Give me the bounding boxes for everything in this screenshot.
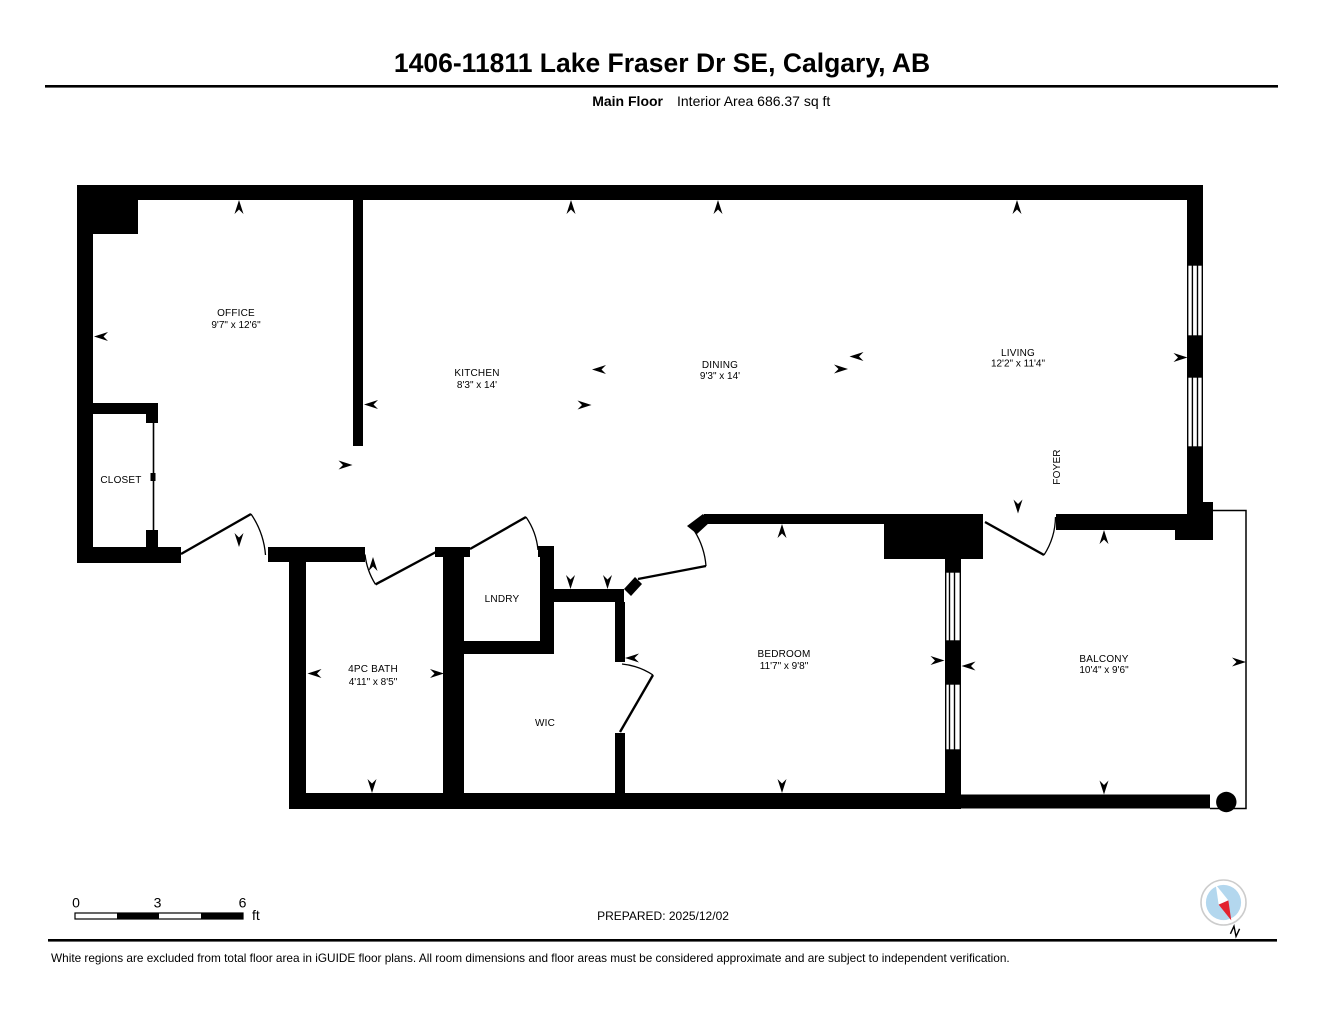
svg-text:WIC: WIC — [535, 718, 555, 729]
svg-text:8'3" x 14': 8'3" x 14' — [457, 380, 497, 391]
svg-text:LNDRY: LNDRY — [485, 594, 520, 605]
svg-text:White regions are excluded fro: White regions are excluded from total fl… — [51, 951, 1010, 965]
svg-text:4PC BATH: 4PC BATH — [348, 664, 398, 675]
svg-text:KITCHEN: KITCHEN — [454, 368, 499, 379]
svg-text:PREPARED: 2025/12/02: PREPARED: 2025/12/02 — [597, 909, 729, 923]
svg-text:1406-11811 Lake Fraser Dr SE,: 1406-11811 Lake Fraser Dr SE, Calgary, A… — [394, 48, 930, 78]
svg-text:9'7" x 12'6": 9'7" x 12'6" — [211, 320, 261, 331]
svg-text:FOYER: FOYER — [1052, 449, 1063, 484]
svg-text:10'4" x 9'6": 10'4" x 9'6" — [1079, 665, 1129, 676]
svg-text:0: 0 — [72, 895, 80, 911]
svg-text:DINING: DINING — [702, 360, 738, 371]
svg-text:3: 3 — [154, 895, 162, 911]
svg-text:BEDROOM: BEDROOM — [757, 649, 810, 660]
svg-text:Main Floor: Main Floor — [592, 93, 663, 109]
svg-text:OFFICE: OFFICE — [217, 308, 255, 319]
svg-text:4'11" x 8'5": 4'11" x 8'5" — [349, 677, 398, 688]
svg-text:6: 6 — [239, 895, 247, 911]
svg-text:9'3" x 14': 9'3" x 14' — [700, 371, 740, 382]
svg-text:CLOSET: CLOSET — [100, 475, 141, 486]
svg-text:BALCONY: BALCONY — [1079, 654, 1128, 665]
svg-text:11'7" x 9'8": 11'7" x 9'8" — [760, 661, 809, 672]
svg-text:ft: ft — [252, 907, 260, 923]
svg-text:12'2" x 11'4": 12'2" x 11'4" — [991, 359, 1046, 370]
svg-text:Interior Area 686.37 sq ft: Interior Area 686.37 sq ft — [677, 93, 830, 109]
svg-text:LIVING: LIVING — [1001, 348, 1035, 359]
